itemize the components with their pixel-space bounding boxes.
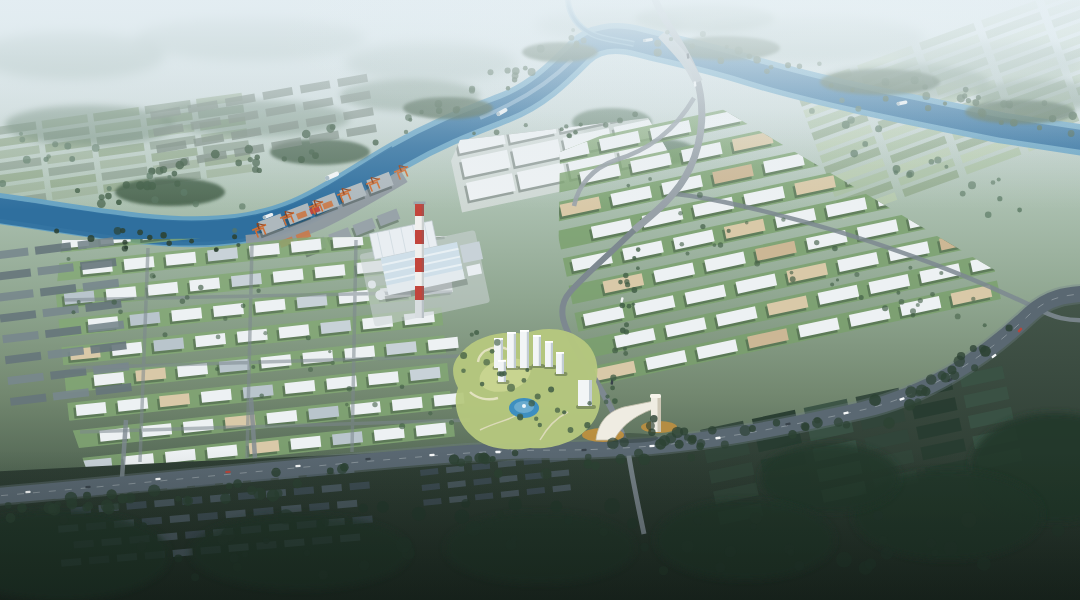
tree: [812, 417, 823, 428]
tree: [612, 398, 618, 404]
tree: [502, 371, 507, 376]
tree: [773, 419, 780, 426]
tree: [788, 430, 797, 439]
tree: [461, 368, 466, 373]
tree: [72, 310, 76, 314]
tree: [150, 273, 156, 279]
tree: [345, 403, 349, 407]
aerial-rendering: Aerial master-plan rendering of a rivers…: [0, 0, 1080, 600]
tree: [610, 375, 616, 381]
tree: [905, 386, 917, 398]
tree: [215, 367, 219, 371]
tree: [610, 386, 615, 391]
tree: [399, 423, 405, 429]
tree: [620, 303, 626, 309]
tree: [921, 387, 930, 396]
tree: [259, 394, 264, 399]
gate-pylon-shade: [658, 396, 662, 432]
tree: [428, 411, 432, 415]
tree: [180, 299, 185, 304]
tree: [538, 423, 542, 427]
tree: [624, 322, 629, 327]
tree: [118, 309, 123, 314]
tree: [216, 335, 221, 340]
tree: [605, 395, 609, 399]
tree: [790, 271, 794, 275]
tree: [650, 415, 657, 422]
tree: [449, 420, 454, 425]
tree: [696, 443, 704, 451]
tree: [754, 261, 760, 267]
tree: [612, 348, 618, 354]
tree: [372, 402, 377, 407]
tree: [534, 417, 538, 421]
tree: [624, 329, 629, 334]
tree: [587, 401, 591, 405]
tree: [308, 367, 313, 372]
tree: [251, 365, 255, 369]
tree: [708, 426, 717, 435]
tree: [328, 350, 331, 353]
tree: [241, 303, 246, 308]
tree: [947, 365, 956, 374]
tree: [918, 298, 923, 303]
tree: [646, 421, 655, 430]
tree: [675, 440, 684, 449]
tree: [490, 349, 495, 354]
tree: [930, 292, 935, 297]
tree: [859, 295, 864, 300]
tree: [954, 356, 965, 367]
tree: [584, 422, 590, 428]
tree: [163, 332, 168, 337]
tree: [306, 335, 311, 340]
tree: [624, 279, 629, 284]
tree: [915, 390, 922, 397]
tree: [916, 303, 920, 307]
tree: [836, 278, 839, 281]
tree: [256, 289, 260, 293]
tree: [983, 323, 987, 327]
tree: [494, 339, 501, 346]
tree: [911, 313, 915, 317]
tree: [604, 400, 609, 405]
tree: [331, 361, 335, 365]
tree: [1006, 324, 1013, 331]
tree: [689, 435, 697, 443]
tree: [854, 272, 859, 277]
tree: [740, 425, 751, 436]
tree: [507, 384, 515, 392]
tree: [869, 394, 881, 406]
tree: [480, 382, 485, 387]
central-park: [453, 329, 600, 449]
tree: [971, 364, 978, 371]
tree: [883, 417, 895, 429]
tree: [529, 400, 535, 406]
tree: [790, 276, 796, 282]
tree: [223, 317, 227, 321]
tree: [655, 439, 666, 450]
tree: [666, 433, 677, 444]
fountain: [522, 404, 526, 408]
tree: [618, 280, 623, 285]
tree: [517, 414, 523, 420]
tree: [939, 271, 943, 275]
tree: [904, 399, 916, 411]
tree: [548, 386, 554, 392]
tree: [896, 291, 900, 295]
tree: [636, 266, 640, 270]
tree: [474, 330, 479, 335]
tree: [970, 345, 977, 352]
tree: [562, 410, 566, 414]
tree: [843, 421, 850, 428]
tree: [347, 386, 352, 391]
tree: [627, 304, 632, 309]
tree: [926, 374, 937, 385]
industrial-park-scene: Aerial master-plan rendering of a rivers…: [0, 0, 1080, 600]
tree: [834, 418, 843, 427]
tree: [623, 351, 628, 356]
tree: [801, 422, 810, 431]
tree: [525, 368, 529, 372]
tree: [555, 408, 560, 413]
gate-pylon-cap: [650, 394, 661, 398]
tree: [979, 345, 987, 353]
tree: [899, 299, 905, 305]
tree: [263, 331, 267, 335]
tree: [632, 303, 636, 307]
tree: [470, 333, 474, 337]
tree: [198, 285, 203, 290]
tree: [607, 438, 619, 450]
tree: [938, 371, 947, 380]
tree: [623, 347, 627, 351]
tree: [185, 295, 190, 300]
tree: [721, 441, 729, 449]
tree: [955, 314, 961, 320]
car: [649, 445, 654, 448]
tree: [830, 282, 834, 286]
tree: [620, 438, 629, 447]
tree: [908, 266, 912, 270]
tree: [460, 352, 467, 359]
tree: [632, 287, 638, 293]
tree: [568, 427, 574, 433]
tree: [623, 273, 628, 278]
tree: [522, 378, 527, 383]
tree: [882, 305, 888, 311]
foreground-vignette: [0, 450, 1080, 600]
tree: [483, 359, 490, 366]
tree: [112, 299, 117, 304]
tree: [77, 300, 81, 304]
tree: [971, 297, 975, 301]
tree: [497, 371, 502, 376]
tree: [535, 394, 541, 400]
sky-glow: [0, 0, 1080, 260]
tree: [400, 385, 405, 390]
